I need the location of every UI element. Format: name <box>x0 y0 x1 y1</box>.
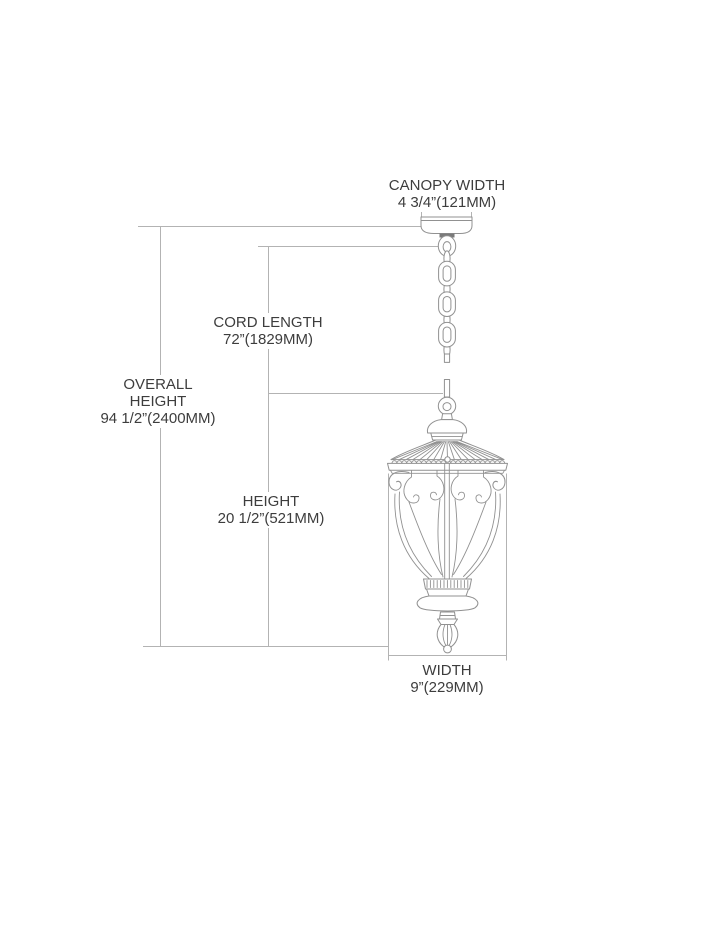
width-value: 9”(229MM) <box>410 679 483 696</box>
cage-center-bar <box>445 464 450 580</box>
hang-ring <box>438 397 455 414</box>
lantern-top <box>388 397 508 473</box>
cord-rod-upper <box>444 354 449 362</box>
overall-height-value: 94 1/2”(2400MM) <box>100 410 215 427</box>
hanging-chain <box>438 236 455 397</box>
lantern-cage <box>389 464 505 580</box>
ceiling-canopy <box>421 217 472 238</box>
diagram-canvas: CANOPY WIDTH 4 3/4”(121MM) CORD LENGTH 7… <box>0 0 720 932</box>
cord-length-label: CORD LENGTH 72”(1829MM) <box>210 313 325 349</box>
scroll-bar <box>451 471 464 578</box>
cord-rod-lower <box>444 380 449 398</box>
chain-link <box>439 261 456 286</box>
height-title: HEIGHT <box>218 493 325 510</box>
canopy-width-label: CANOPY WIDTH 4 3/4”(121MM) <box>386 176 508 212</box>
canopy-width-value: 4 3/4”(121MM) <box>389 194 505 211</box>
height-value: 20 1/2”(521MM) <box>218 510 325 527</box>
height-label: HEIGHT 20 1/2”(521MM) <box>215 492 328 528</box>
width-title: WIDTH <box>410 662 483 679</box>
chain-link <box>439 322 456 347</box>
overall-height-title-2: HEIGHT <box>100 393 215 410</box>
lantern-bottom <box>417 579 478 653</box>
cord-length-title: CORD LENGTH <box>213 314 322 331</box>
canopy-width-title: CANOPY WIDTH <box>389 177 505 194</box>
roof-rim <box>388 463 508 470</box>
overall-height-title-1: OVERALL <box>100 376 215 393</box>
lantern-dimension-drawing <box>0 0 720 932</box>
overall-height-label: OVERALL HEIGHT 94 1/2”(2400MM) <box>97 375 218 428</box>
cage-outline-left <box>395 492 432 579</box>
chain-link <box>439 292 456 317</box>
finial-ball <box>444 645 452 653</box>
cage-outline-right <box>464 492 501 579</box>
scroll-bar <box>454 471 492 575</box>
corner-scroll-left <box>389 472 409 491</box>
scroll-bar <box>430 471 443 578</box>
cord-length-value: 72”(1829MM) <box>213 331 322 348</box>
width-label: WIDTH 9”(229MM) <box>407 661 486 697</box>
scroll-bar <box>404 471 442 575</box>
bell-finial <box>427 420 466 433</box>
bottom-cup <box>417 596 478 611</box>
